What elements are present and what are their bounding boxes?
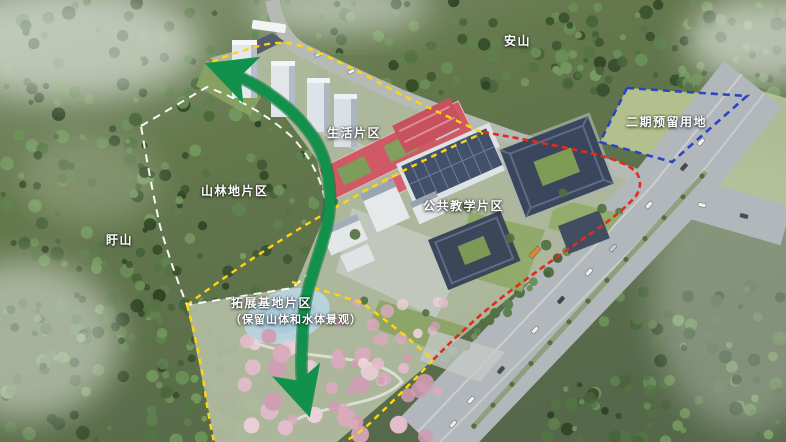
campus-aerial-masterplan: 安山 二期预留用地 生活片区 山林地片区 盱山 公共教学片区 拓展基地片区 （保… bbox=[0, 0, 786, 442]
label-xushan-mountain: 盱山 bbox=[106, 231, 133, 248]
label-living-zone: 生活片区 bbox=[327, 124, 381, 141]
label-expansion-note: （保留山体和水体景观） bbox=[230, 311, 362, 327]
label-teaching-zone: 公共教学片区 bbox=[423, 197, 504, 214]
label-expansion-zone: 拓展基地片区 bbox=[231, 294, 312, 311]
label-anshan-mountain: 安山 bbox=[504, 32, 531, 49]
label-phase2-reserved-land: 二期预留用地 bbox=[626, 113, 707, 130]
label-forest-zone: 山林地片区 bbox=[201, 182, 269, 199]
masterplan-rendering-canvas bbox=[0, 0, 786, 442]
